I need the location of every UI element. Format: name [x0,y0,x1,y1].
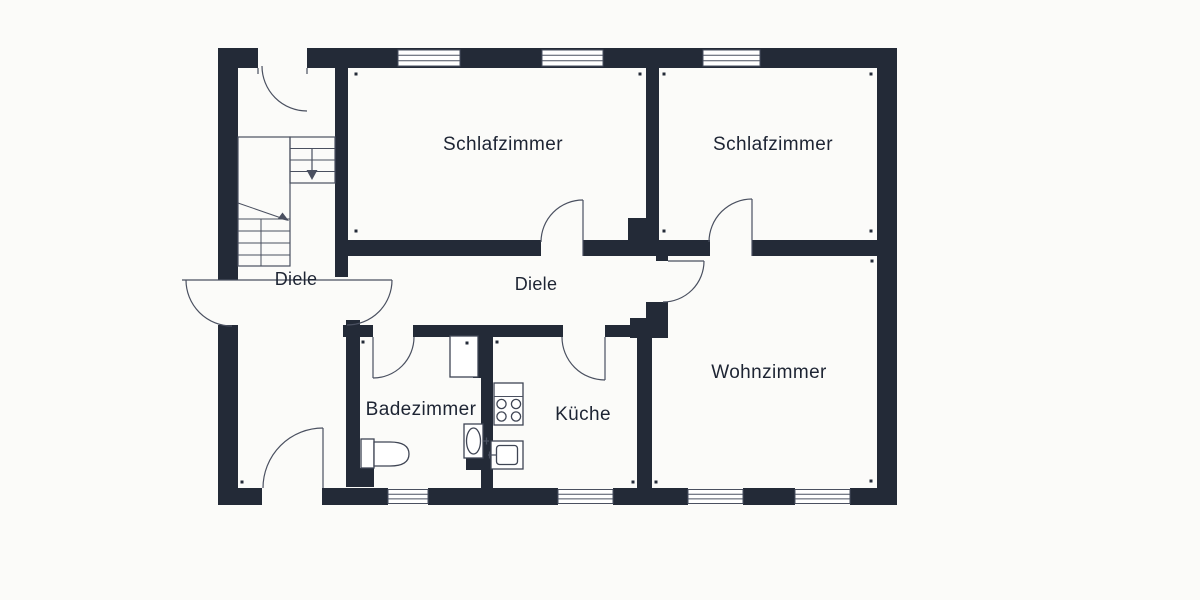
door-swing-icon [562,337,605,380]
wall-bedroom-divider [646,68,659,240]
floor-plan-drawing: Schlafzimmer Schlafzimmer Wohnzimmer Die… [0,0,1200,600]
stove-icon [494,383,523,425]
wall-segment [605,325,648,337]
stair-break-arrow-icon [278,213,289,222]
wall-segment [218,48,238,280]
staircase-icon [238,137,335,266]
stairs-down-arrow-icon [307,148,318,180]
wall-step [646,302,668,338]
wall-segment [743,488,795,505]
door-swing-icon [663,261,704,302]
window-icon [388,490,428,504]
floor-plan-canvas: Schlafzimmer Schlafzimmer Wohnzimmer Die… [0,0,1200,600]
room-label-hall-upper: Diele [275,269,318,289]
walls [218,48,897,505]
room-label-bedroom2: Schlafzimmer [713,134,833,155]
wall-segment [850,488,897,505]
window-icon [688,490,743,504]
wall-segment [613,488,688,505]
kitchen-sink-icon [488,441,523,469]
window-icon [558,490,613,504]
wall-kitchen-living-divider [637,338,652,488]
room-label-hall-center: Diele [515,274,558,294]
room-label-kitchen: Küche [555,404,611,425]
door-swing-icon [709,199,752,256]
wall-segment [752,240,877,256]
wall-segment [322,488,388,505]
window-icon [703,50,760,66]
window-icon [398,50,460,66]
wall-bathroom-west [346,320,360,487]
wall-segment [218,325,238,505]
wall-segment [238,488,262,505]
wall-segment [348,240,541,256]
wall-segment [428,488,558,505]
door-swing-icon [258,66,307,111]
wall-door-jamb [656,252,668,261]
wall-stub [360,468,374,487]
toilet-icon [361,439,409,468]
window-icon [542,50,603,66]
door-swing-icon [373,337,414,378]
door-swing-icon [263,428,323,488]
wall-segment [583,240,710,256]
room-label-bathroom: Badezimmer [366,399,477,420]
windows [388,50,850,504]
wall-stairwell [335,48,348,277]
wall-segment [877,48,897,505]
door-swing-icon [541,200,583,256]
room-label-bedroom1: Schlafzimmer [443,134,563,155]
wall-step [628,218,646,243]
wall-stub [466,458,481,470]
shower-niche-icon [450,336,478,377]
room-label-living-room: Wohnzimmer [711,362,827,383]
window-icon [795,490,850,504]
